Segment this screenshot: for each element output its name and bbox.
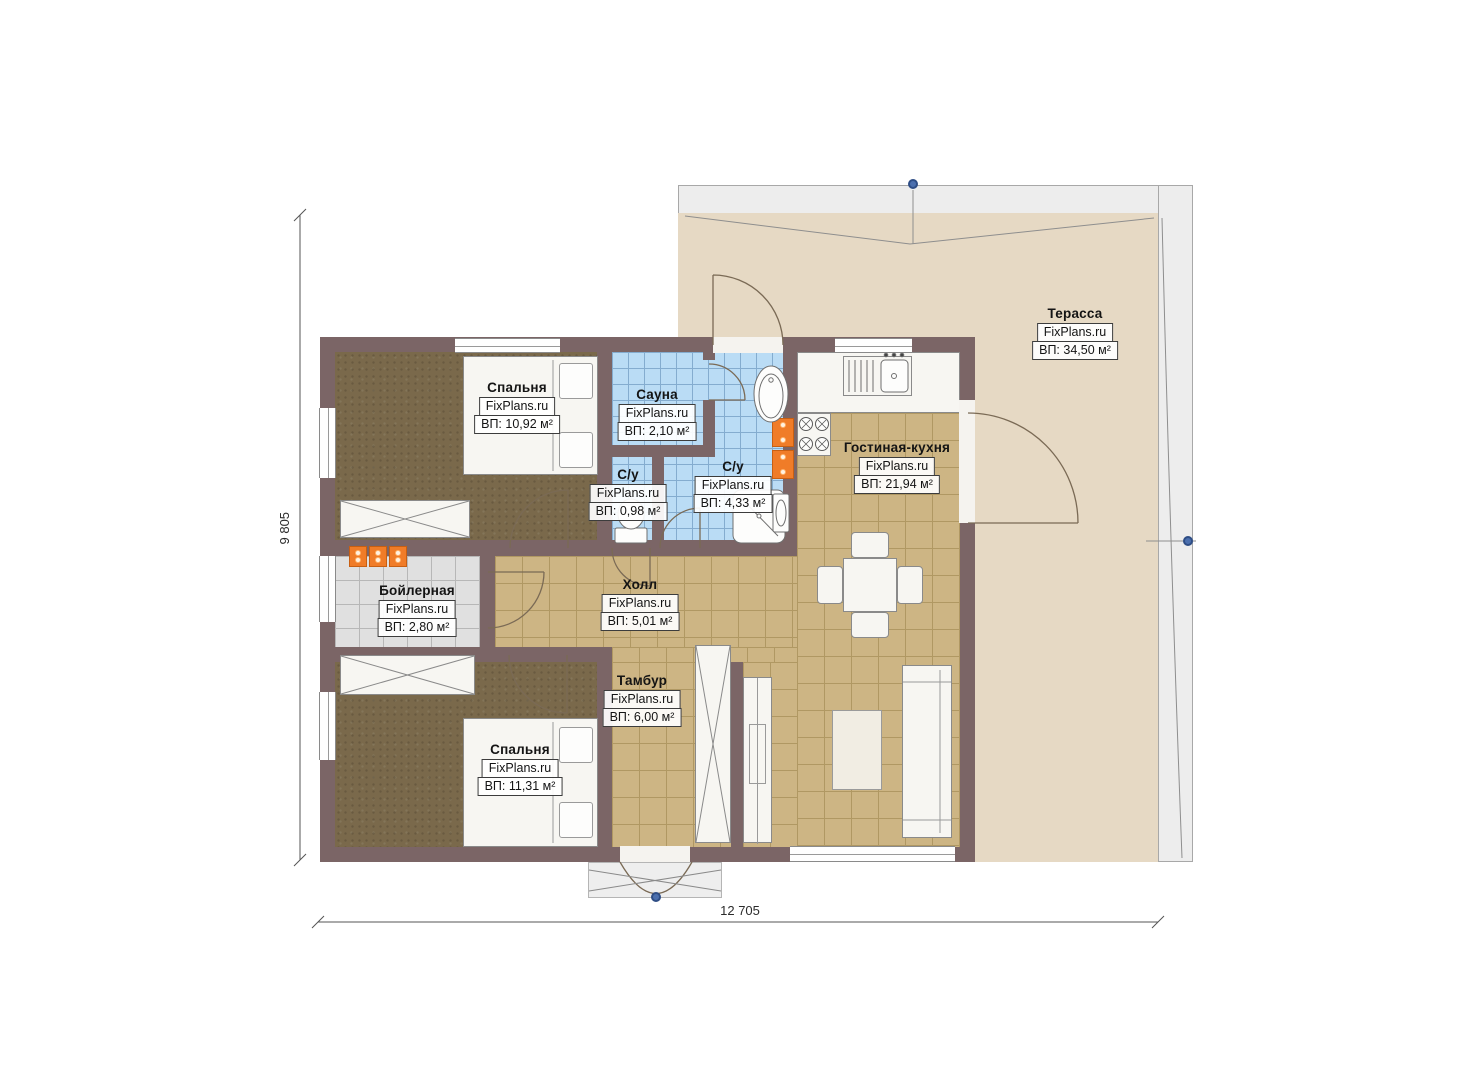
radiator [772,450,794,479]
watermark: FixPlans.ru [590,484,667,503]
radiator [389,546,407,567]
room-name: Сауна [618,387,697,402]
sofa [902,665,952,838]
wall [703,352,715,360]
watermark: FixPlans.ru [482,759,559,778]
room-area: ВП: 10,92 м² [474,415,560,434]
window [790,846,955,862]
marker-dot [651,892,661,902]
terrace-edge-band-right [1158,185,1193,862]
room-area: ВП: 11,31 м² [478,777,563,796]
watermark: FixPlans.ru [859,457,936,476]
window [835,338,912,353]
marker-dot [1183,536,1193,546]
wall [700,540,790,556]
hallway-cabinet [743,677,772,843]
room-name: Бойлерная [378,583,457,598]
room-name: Спальня [474,380,560,395]
room-label-sauna: Сауна FixPlans.ru ВП: 2,10 м² [618,387,697,441]
wall [480,628,495,647]
wall [650,540,662,556]
floor-plan: Спальня FixPlans.ru ВП: 10,92 м² Сауна F… [0,0,1474,1080]
terrace-edge-band-top [678,185,1193,214]
terrace-door-opening [959,400,975,523]
dining-chair [897,566,923,604]
room-label-bedroom-2: Спальня FixPlans.ru ВП: 11,31 м² [478,742,563,796]
radiator [349,546,367,567]
room-area: ВП: 6,00 м² [603,708,682,727]
kitchen-stove [797,413,831,456]
wall [612,540,618,556]
wall [567,647,612,662]
radiator [369,546,387,567]
room-name: Холл [601,577,680,592]
coffee-table [832,710,882,790]
wall [703,400,715,457]
room-name: Спальня [478,742,563,757]
window [319,692,336,760]
room-label-tambour: Тамбур FixPlans.ru ВП: 6,00 м² [603,673,682,727]
dining-chair [851,612,889,638]
terrace-door-opening [713,337,783,353]
watermark: FixPlans.ru [479,397,556,416]
room-area: ВП: 0,98 м² [589,502,668,521]
window [319,408,336,478]
room-area: ВП: 2,10 м² [618,422,697,441]
dining-chair [817,566,843,604]
window [455,338,560,353]
marker-dot [908,179,918,189]
wall [568,540,612,556]
room-area: ВП: 2,80 м² [378,618,457,637]
wall [612,445,703,457]
dining-table [843,558,897,612]
room-label-boiler: Бойлерная FixPlans.ru ВП: 2,80 м² [378,583,457,637]
room-label-bedroom-1: Спальня FixPlans.ru ВП: 10,92 м² [474,380,560,434]
wardrobe [340,655,475,695]
dining-chair [851,532,889,558]
room-name: Терасса [1032,306,1118,321]
room-name: Гостиная-кухня [844,440,950,455]
kitchen-sink [843,356,912,396]
room-label-living-kitchen: Гостиная-кухня FixPlans.ru ВП: 21,94 м² [844,440,950,494]
watermark: FixPlans.ru [695,476,772,495]
watermark: FixPlans.ru [602,594,679,613]
room-area: ВП: 4,33 м² [694,494,773,513]
wall [731,662,743,847]
watermark: FixPlans.ru [604,690,681,709]
watermark: FixPlans.ru [619,404,696,423]
room-label-wc-small: С/у FixPlans.ru ВП: 0,98 м² [589,467,668,521]
dimension-height: 9 805 [277,512,292,545]
wall [480,556,495,572]
dimension-width: 12 705 [720,903,760,918]
radiator [772,418,794,447]
room-name: С/у [589,467,668,482]
room-name: С/у [694,459,773,474]
wardrobe [340,500,470,538]
room-label-terrace: Терасса FixPlans.ru ВП: 34,50 м² [1032,306,1118,360]
entrance-door-opening [620,846,690,862]
room-area: ВП: 34,50 м² [1032,341,1118,360]
room-label-wc-large: С/у FixPlans.ru ВП: 4,33 м² [694,459,773,513]
room-area: ВП: 21,94 м² [854,475,940,494]
room-area: ВП: 5,01 м² [601,612,680,631]
window [319,556,336,622]
watermark: FixPlans.ru [1037,323,1114,342]
watermark: FixPlans.ru [379,600,456,619]
room-name: Тамбур [603,673,682,688]
room-label-hall: Холл FixPlans.ru ВП: 5,01 м² [601,577,680,631]
wardrobe [695,645,731,843]
